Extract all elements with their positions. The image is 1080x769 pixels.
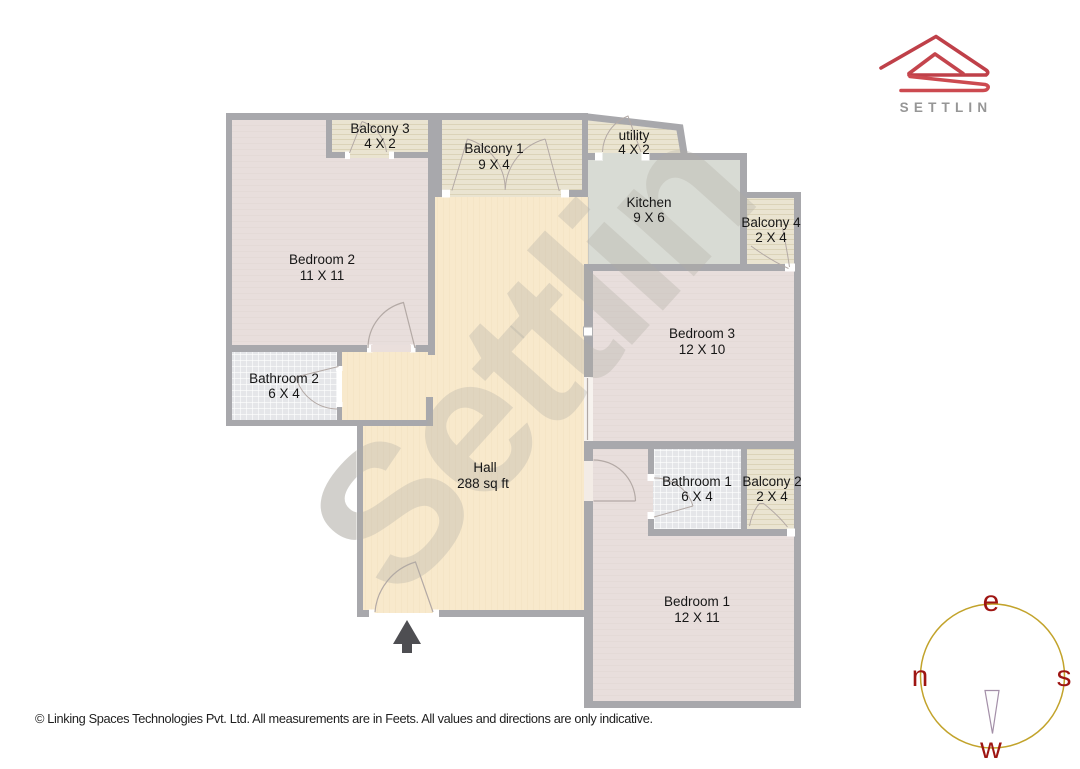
svg-text:Kitchen: Kitchen: [626, 195, 671, 210]
svg-text:Bathroom 2: Bathroom 2: [249, 371, 319, 386]
svg-text:Bedroom 2: Bedroom 2: [289, 252, 355, 267]
svg-text:Balcony 4: Balcony 4: [741, 215, 801, 230]
svg-text:6 X 4: 6 X 4: [268, 386, 300, 401]
svg-text:Hall: Hall: [473, 460, 496, 475]
svg-text:utility: utility: [619, 128, 650, 143]
svg-text:6 X 4: 6 X 4: [681, 489, 713, 504]
svg-text:s: s: [1057, 660, 1072, 693]
svg-text:288 sq ft: 288 sq ft: [457, 476, 509, 491]
svg-text:11 X 11: 11 X 11: [300, 268, 345, 283]
svg-text:9 X 4: 9 X 4: [478, 157, 510, 172]
svg-text:2 X 4: 2 X 4: [755, 230, 787, 245]
svg-text:Balcony 1: Balcony 1: [464, 141, 523, 156]
svg-text:Balcony 3: Balcony 3: [350, 121, 409, 136]
svg-text:2 X 4: 2 X 4: [756, 489, 788, 504]
svg-text:12 X 10: 12 X 10: [679, 342, 726, 357]
svg-text:9 X 6: 9 X 6: [633, 210, 665, 225]
svg-text:© Linking Spaces Technologies: © Linking Spaces Technologies Pvt. Ltd. …: [35, 711, 653, 726]
svg-text:12 X 11: 12 X 11: [674, 610, 720, 625]
svg-text:w: w: [979, 732, 1002, 764]
svg-text:Bedroom 1: Bedroom 1: [664, 594, 730, 609]
svg-text:Bathroom 1: Bathroom 1: [662, 474, 732, 489]
svg-text:n: n: [912, 660, 929, 693]
svg-text:Bedroom 3: Bedroom 3: [669, 326, 735, 341]
svg-text:4 X 2: 4 X 2: [364, 136, 396, 151]
svg-text:SETTLIN: SETTLIN: [900, 100, 993, 115]
svg-text:Balcony 2: Balcony 2: [742, 474, 801, 489]
svg-text:4 X 2: 4 X 2: [618, 142, 650, 157]
svg-text:e: e: [983, 585, 1000, 618]
